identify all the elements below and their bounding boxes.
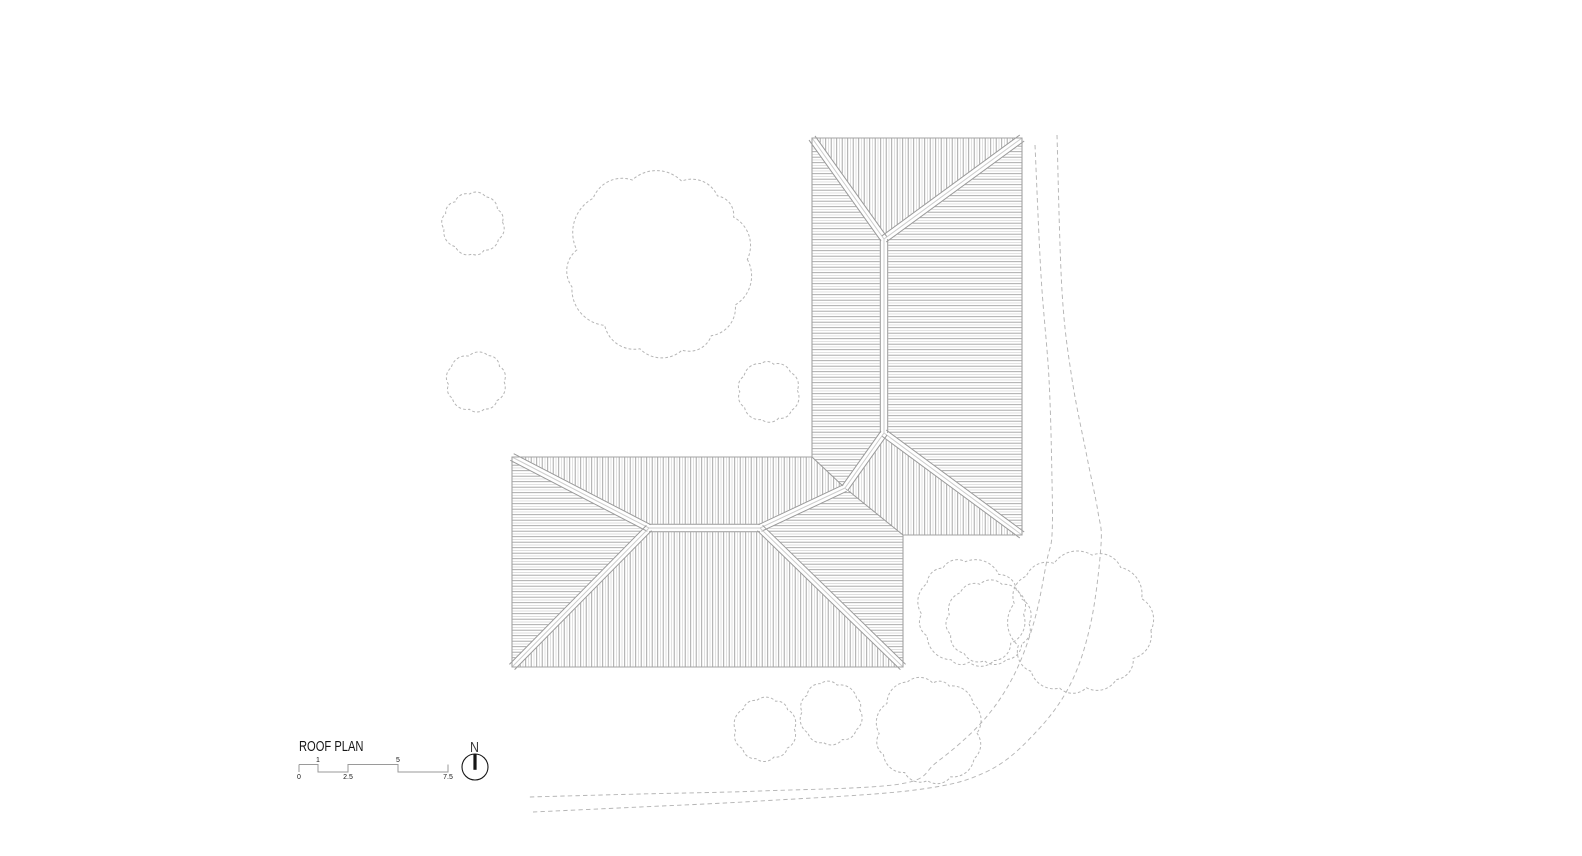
svg-text:0: 0 <box>297 774 301 781</box>
svg-text:1: 1 <box>316 757 320 764</box>
svg-text:7.5: 7.5 <box>443 774 453 781</box>
svg-text:5: 5 <box>396 757 400 764</box>
svg-text:N: N <box>470 739 479 756</box>
svg-text:ROOF PLAN: ROOF PLAN <box>299 738 364 755</box>
svg-text:2.5: 2.5 <box>343 774 353 781</box>
